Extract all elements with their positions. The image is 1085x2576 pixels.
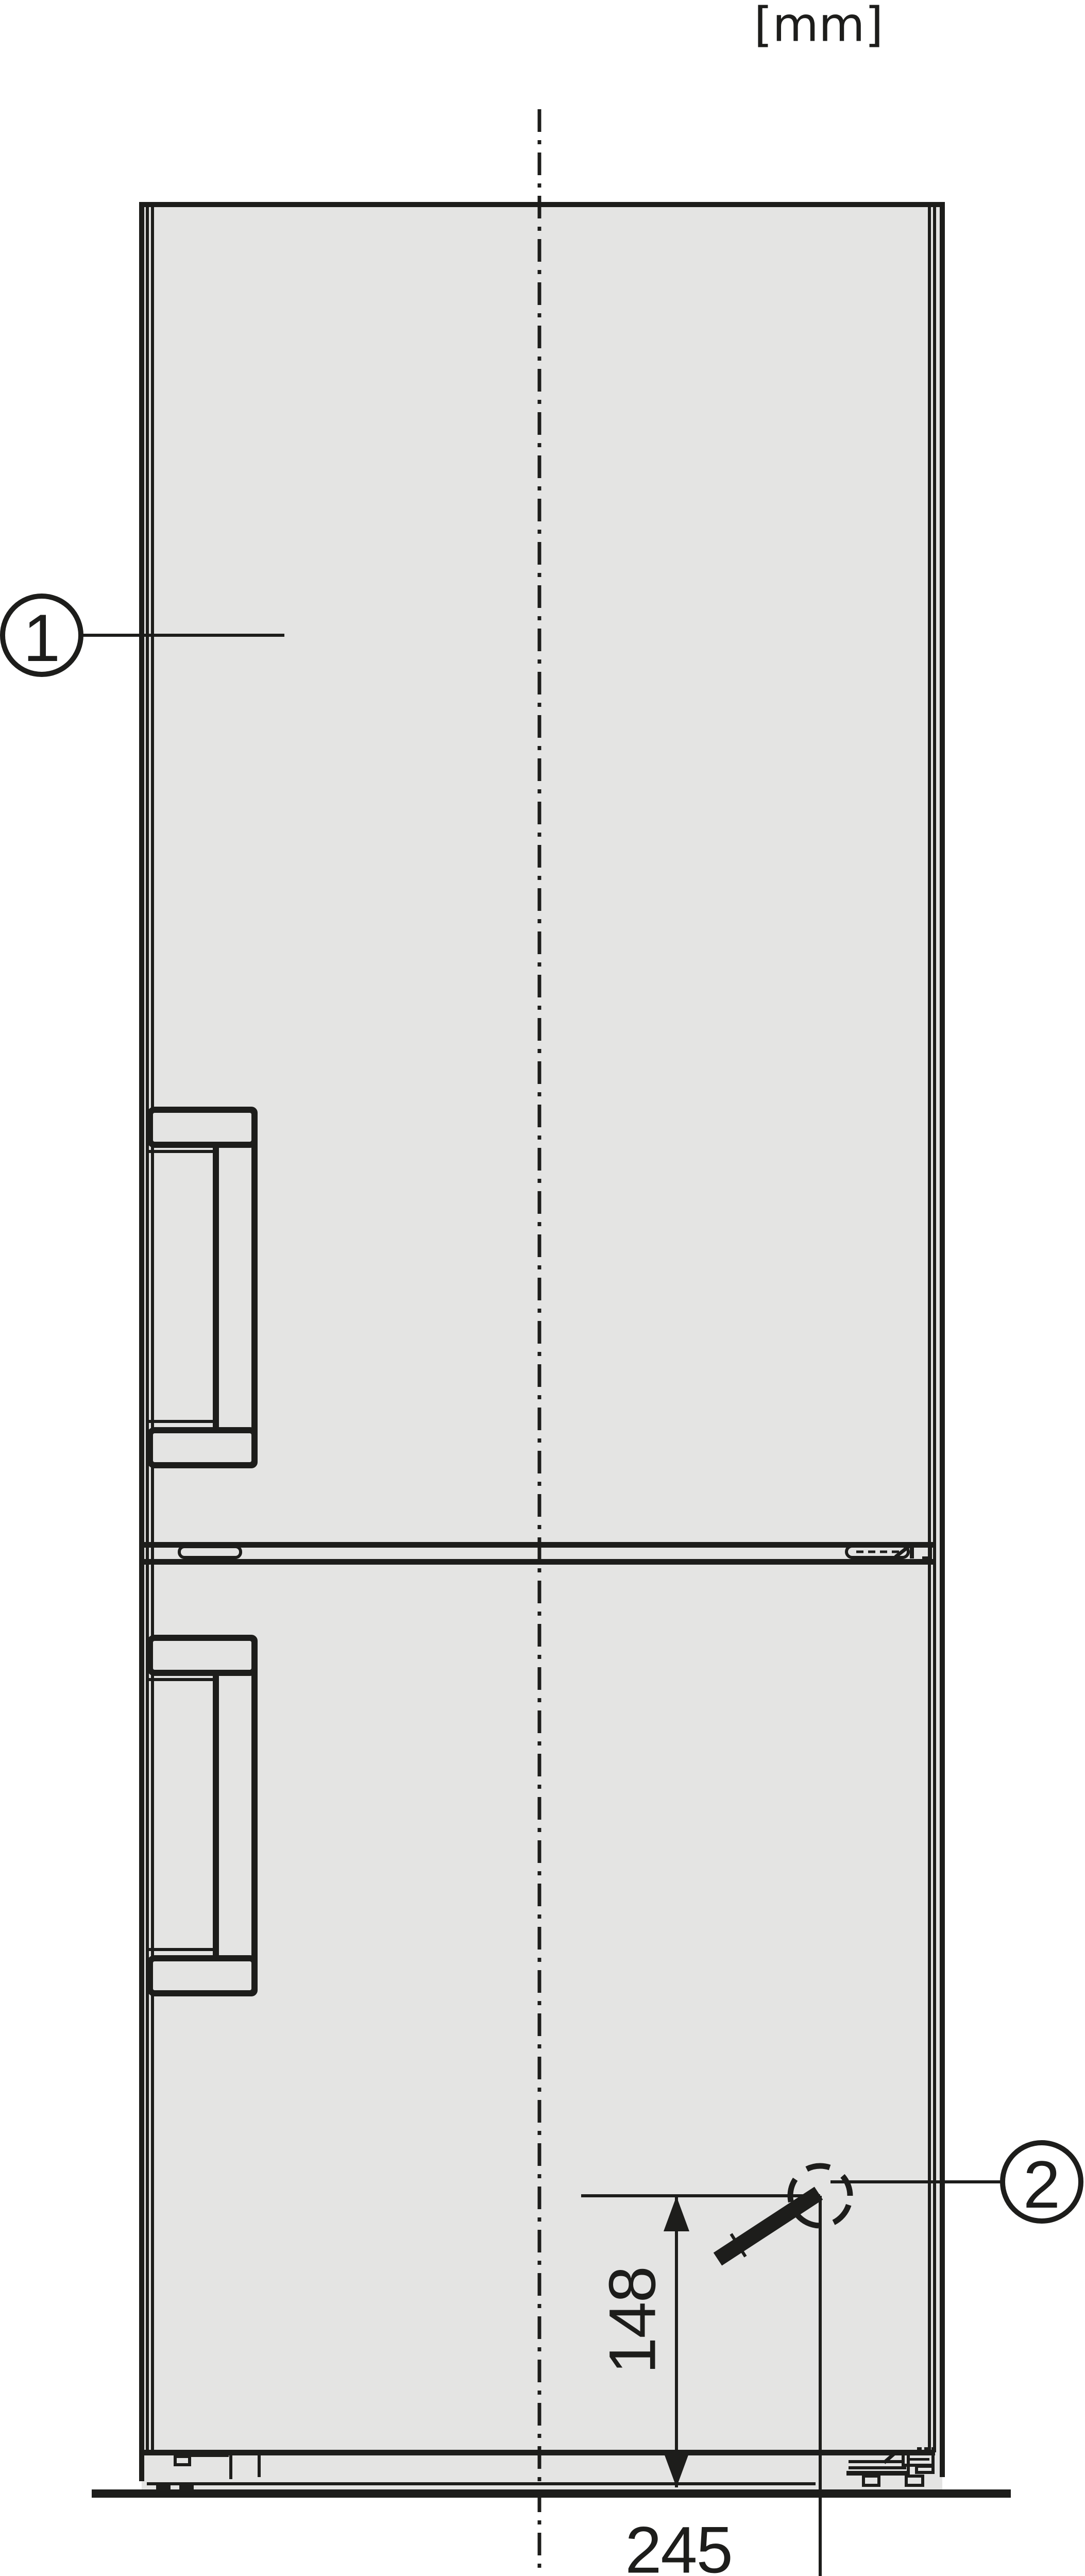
cabinet-body: [142, 205, 942, 2492]
callout-2-leader-line: [830, 2180, 1004, 2183]
callout-1-leader-line: [81, 634, 284, 637]
lower-door-bottom-edge: [144, 2450, 934, 2455]
cabinet-right-edge: [940, 202, 945, 2477]
dim-148-reference-line: [581, 2194, 820, 2197]
appliance-dimension-diagram: 148 245 1 2 [mm]: [0, 0, 1085, 2576]
dim-148-label: 148: [596, 2267, 670, 2374]
technical-drawing-page: 148 245 1 2 [mm]: [0, 0, 1085, 2576]
lower-door-top-edge: [144, 1559, 934, 1565]
dim-245-label: 245: [625, 2514, 732, 2576]
plinth-bottom-line: [147, 2482, 816, 2485]
cabinet-left-edge: [139, 202, 144, 2481]
left-door-edge-line-1: [146, 207, 149, 2452]
right-door-edge-line-1: [928, 207, 931, 2452]
divider-hinge-pill: [179, 1547, 241, 1557]
right-door-edge-line-2: [933, 207, 936, 2452]
floor-line: [92, 2489, 1011, 2498]
unit-label: [mm]: [754, 0, 883, 53]
upper-door-bottom-edge: [144, 1542, 934, 1548]
callout-2-number: 2: [1023, 2147, 1060, 2222]
left-door-edge-line-2: [151, 207, 154, 2452]
callout-1-number: 1: [23, 600, 60, 675]
cabinet-top-edge: [139, 202, 945, 207]
dim-extension-line: [819, 2196, 822, 2576]
fridge-cabinet: [142, 205, 942, 2492]
dim-148-line: [675, 2196, 678, 2487]
